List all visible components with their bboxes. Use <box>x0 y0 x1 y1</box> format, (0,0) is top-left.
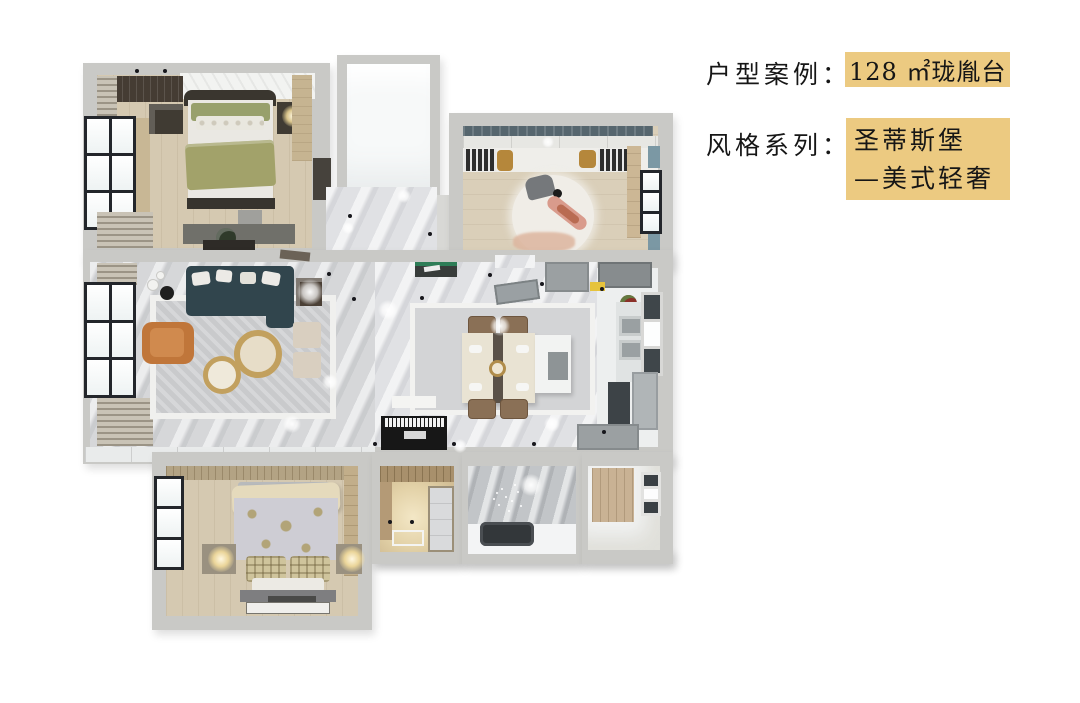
sofa-pillow <box>240 272 256 284</box>
cloakroom-table <box>392 530 424 546</box>
room-second-bedroom <box>152 452 372 630</box>
bathroom-marble-wall <box>468 466 576 524</box>
spotlight-dot <box>420 296 424 300</box>
ceiling-flare <box>322 374 338 390</box>
living-lower-blinds <box>97 398 153 446</box>
style-series-name: 圣蒂斯堡 <box>854 122 1010 160</box>
study-teal-cabinet-top <box>463 126 653 136</box>
dining-plate <box>516 345 529 353</box>
ceiling-flare <box>544 416 560 432</box>
bedroom2-duvet <box>234 498 338 560</box>
room-lower-bathroom <box>462 452 582 564</box>
top-bathroom-floor <box>347 64 430 191</box>
piano-shelf <box>392 396 436 408</box>
ottoman <box>293 352 321 378</box>
case-value-highlight: 128 ㎡珑胤台 <box>845 52 1010 87</box>
ceiling-flare <box>397 189 411 203</box>
ceiling-flare <box>283 415 301 433</box>
piano-keys <box>384 418 444 427</box>
ceiling-flare <box>378 300 398 320</box>
master-bench <box>203 240 255 250</box>
spotlight-dot <box>388 520 392 524</box>
study-gold-chair-left <box>497 150 513 171</box>
ceiling-flare <box>453 439 467 453</box>
ceiling-dot <box>135 69 139 73</box>
style-label: 风格系列： <box>706 126 851 162</box>
spotlight-dot <box>452 442 456 446</box>
floor-lamp-white <box>147 279 159 291</box>
master-wood-column <box>292 75 312 161</box>
study-gold-chair-right <box>579 150 596 168</box>
floor-lamp-black <box>160 286 174 300</box>
spotlight-dot <box>540 282 544 286</box>
master-bed-footboard <box>187 198 275 209</box>
master-nightstand-left <box>149 104 183 134</box>
dining-plate <box>469 345 482 353</box>
floor-lamp-white-small <box>156 271 165 280</box>
kitchen-sink <box>619 340 643 360</box>
coffee-table-small <box>203 356 241 394</box>
ceiling-flare <box>342 222 354 234</box>
bathtub <box>480 522 534 546</box>
page: 户型案例： 128 ㎡珑胤台 风格系列： 圣蒂斯堡 —美式轻奢 <box>0 0 1080 703</box>
dining-chair <box>468 399 496 419</box>
room-study <box>449 113 673 268</box>
kitchen-bottom-cabinet <box>577 424 639 450</box>
bedroom2-rug <box>246 602 330 614</box>
ottoman <box>293 322 321 348</box>
ceiling-flare <box>542 136 554 148</box>
study-window <box>640 170 662 234</box>
spotlight-dot <box>327 272 331 276</box>
bedroom2-top-wardrobe <box>166 466 358 480</box>
doorway-gap <box>495 255 535 268</box>
room-master-bedroom <box>83 63 330 262</box>
kitchen-sink <box>619 316 643 336</box>
bedroom2-lamp-glow <box>339 546 365 572</box>
case-label: 户型案例： <box>706 55 851 91</box>
spotlight-dot <box>600 287 604 291</box>
dining-plate <box>516 383 529 391</box>
cloakroom-left-wardrobe <box>380 482 392 540</box>
piano-sheet <box>404 431 426 439</box>
style-value-highlight: 圣蒂斯堡 —美式轻奢 <box>846 118 1010 200</box>
spotlight-dot <box>602 430 606 434</box>
room-top-bathroom <box>337 55 440 200</box>
cloakroom-top-wardrobe <box>380 466 454 482</box>
kitchen-window <box>641 292 663 376</box>
kitchen-top-cabinet-dark <box>598 262 652 288</box>
style-series-sub: —美式轻奢 <box>854 160 1010 198</box>
bathroom-sparkle-lights <box>505 496 507 498</box>
island-inset <box>548 352 568 380</box>
kitchen-top-cabinet <box>545 262 589 292</box>
sofa-pillow <box>191 271 211 286</box>
sofa-pillow <box>215 269 232 283</box>
coffee-table-large <box>234 330 282 378</box>
ceiling-flare <box>490 316 510 336</box>
master-pillows-lace <box>196 116 264 130</box>
master-window-sill <box>136 118 150 226</box>
spotlight-dot <box>488 273 492 277</box>
study-wardrobe-right <box>627 146 641 238</box>
spotlight-dot <box>352 297 356 301</box>
fridge <box>608 382 630 430</box>
utility-window <box>641 472 661 516</box>
study-books-left <box>464 149 496 171</box>
study-curtain-top <box>648 146 660 168</box>
utility-wood-panel <box>592 468 634 522</box>
bathroom-ceiling-light <box>520 474 542 496</box>
spotlight-dot <box>410 520 414 524</box>
dining-chair <box>500 399 528 419</box>
floor-plan <box>0 0 703 703</box>
dining-centerpiece <box>489 360 506 377</box>
ceiling-dot <box>163 69 167 73</box>
kitchen-lower-cabinet <box>632 372 658 430</box>
living-window <box>84 282 136 398</box>
dining-plate <box>469 383 482 391</box>
spotlight-dot <box>373 442 377 446</box>
ceiling-flare <box>297 279 323 305</box>
spotlight-dot <box>348 214 352 218</box>
spotlight-dot <box>428 232 432 236</box>
master-duvet-olive <box>185 140 276 191</box>
bedroom2-lamp-glow <box>208 546 234 572</box>
room-cloakroom <box>372 452 462 564</box>
room-utility <box>582 452 673 564</box>
bedroom2-window <box>154 476 184 570</box>
cloakroom-gray-wardrobe <box>428 486 454 552</box>
spotlight-dot <box>532 442 536 446</box>
armchair-cushion <box>150 328 184 357</box>
study-peach-rug <box>513 232 575 252</box>
master-lower-blinds <box>97 212 153 248</box>
